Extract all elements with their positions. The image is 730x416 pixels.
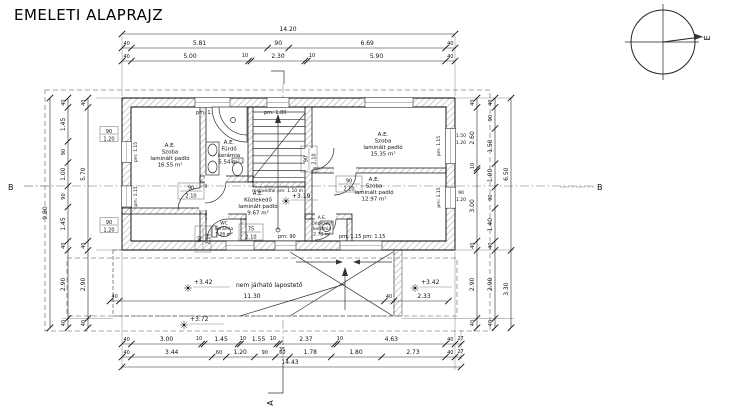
dim-label: 1.20 xyxy=(234,349,248,356)
level-corridor: +3.19 xyxy=(292,193,311,200)
room-label-furdo: A.E. Fürdő kerámia 5.54 m² xyxy=(218,140,240,166)
svg-text:A.E.: A.E. xyxy=(224,140,235,146)
stair-parapet-wall xyxy=(253,182,305,187)
svg-text:90: 90 xyxy=(346,179,352,185)
dim-label: 9.80 xyxy=(42,206,49,220)
dim-label: 40 xyxy=(470,100,476,106)
sink-icon xyxy=(208,161,217,173)
window xyxy=(446,187,456,208)
dim-label: 2.73 xyxy=(406,349,420,356)
dim-chain-top: 14.20 40 5.81 90 6.69 40 40 5.00 10 2.30… xyxy=(119,26,458,64)
svg-text:2.73 m²: 2.73 m² xyxy=(313,232,331,238)
dim-label: 40 xyxy=(124,54,130,60)
dim-label: 1.45 xyxy=(60,217,67,231)
room-label-szoba1: A.E. Szoba laminált padló 16.55 m² xyxy=(150,143,190,169)
dim-label: 40 xyxy=(61,100,67,106)
svg-text:laminált padló: laminált padló xyxy=(354,189,394,196)
dim-label: 10 xyxy=(196,336,202,342)
dim-label: 40 xyxy=(124,350,130,356)
window-pm-label: pm: 1.15 xyxy=(133,142,139,162)
dim-label: 3.00 xyxy=(160,336,174,343)
dim-label: 90 xyxy=(61,149,67,155)
dim-label: 27 xyxy=(457,336,463,342)
dim-label: 10 xyxy=(309,53,315,59)
dim-label: 90 xyxy=(488,194,494,200)
exterior-walls xyxy=(122,98,455,250)
svg-text:A.E.: A.E. xyxy=(369,177,380,183)
dim-label: 40 xyxy=(124,41,130,47)
window-flag: 90 1.20 xyxy=(100,127,118,143)
north-label: É xyxy=(701,35,712,40)
dim-label: 60 xyxy=(216,350,222,356)
dim-label: 10 xyxy=(240,336,246,342)
dim-label: 5.90 xyxy=(370,53,384,60)
compass: É xyxy=(625,4,712,80)
svg-text:Gépészet: Gépészet xyxy=(311,220,332,227)
window xyxy=(275,241,296,250)
svg-text:1.20: 1.20 xyxy=(456,140,466,146)
dim-label: 40 xyxy=(470,243,476,249)
svg-text:1.50: 1.50 xyxy=(456,133,466,139)
dim-label: 6.50 xyxy=(503,167,510,181)
section-a-top-mark xyxy=(271,71,284,84)
svg-text:16.55 m²: 16.55 m² xyxy=(157,162,182,169)
room-label-szoba3: A.E. Szoba laminált padló 12.97 m² xyxy=(354,177,394,203)
dim-label: 1.50 xyxy=(487,139,494,153)
dim-label: 14.20 xyxy=(279,26,296,33)
window xyxy=(122,186,132,207)
svg-text:2.10: 2.10 xyxy=(185,194,196,200)
svg-text:1.20: 1.20 xyxy=(456,197,466,203)
dim-label: 90 xyxy=(488,115,494,121)
window-flag: 90 1.20 xyxy=(456,190,466,203)
dim-label: 10 xyxy=(242,53,248,59)
svg-text:A.E.: A.E. xyxy=(378,132,389,138)
dim-label: 40 xyxy=(61,320,67,326)
dim-label: 11.30 xyxy=(243,293,260,300)
window xyxy=(446,129,456,164)
svg-text:2.10: 2.10 xyxy=(312,153,318,164)
windows xyxy=(122,98,456,251)
dim-label: 3.30 xyxy=(503,282,510,296)
level-marker-icon xyxy=(184,284,192,292)
svg-text:2.10: 2.10 xyxy=(206,233,212,244)
dim-label: 40 xyxy=(488,320,494,326)
dim-label: 2.37 xyxy=(299,336,313,343)
window-labels: pm: 1.80 pm: 1.80 90 1.20 90 1.20 pm: 1.… xyxy=(100,110,466,240)
dim-label: 40 xyxy=(447,41,453,47)
room-label-szoba2: A.E. Szoba laminált padló 15.35 m² xyxy=(363,132,403,158)
floor-plan-svg: EMELETI ALAPRAJZ É nem járható lapostető xyxy=(0,0,730,416)
svg-text:WC: WC xyxy=(220,221,228,227)
level-marker-icon xyxy=(180,321,188,329)
svg-text:12.97 m²: 12.97 m² xyxy=(361,196,386,203)
dim-label: 1.80 xyxy=(349,349,363,356)
svg-text:Szoba: Szoba xyxy=(375,139,392,145)
dim-label: 90 xyxy=(61,193,67,199)
svg-text:9.67 m²: 9.67 m² xyxy=(247,210,269,217)
dim-label: 5.81 xyxy=(193,40,207,47)
level-roof-left: +3.42 xyxy=(194,279,213,286)
roof-terrace: nem járható lapostető +3.42 +3.72 +3.42 … xyxy=(107,250,452,329)
level-roof-right: +3.42 xyxy=(421,279,440,286)
section-b-left: B xyxy=(8,183,14,192)
window-pm-label: pm: 1.15 pm: 1.15 xyxy=(339,234,386,240)
dim-label: 40 xyxy=(470,320,476,326)
dim-chain-bottom: 40 3.00 10 1.45 10 1.55 10 35 2.37 10 4.… xyxy=(119,336,465,370)
dim-label: 2.90 xyxy=(487,278,494,292)
svg-text:90: 90 xyxy=(458,190,464,196)
roof-label: nem járható lapostető xyxy=(236,282,303,289)
svg-text:Szoba: Szoba xyxy=(366,184,383,190)
svg-text:A.E.: A.E. xyxy=(318,215,327,221)
dim-label: 6.69 xyxy=(361,40,375,47)
dim-label: 14.43 xyxy=(281,359,298,366)
dim-label: 90 xyxy=(274,40,282,47)
svg-text:laminált padló: laminált padló xyxy=(363,144,403,151)
section-a-bottom-mark xyxy=(268,364,283,393)
dim-label: 40 xyxy=(81,320,87,326)
dim-label: 40 xyxy=(112,294,118,300)
window xyxy=(226,241,254,250)
window-pm-label: pm: 1.80 xyxy=(264,110,286,116)
dim-label: 2.90 xyxy=(60,278,67,292)
svg-text:kerámia: kerámia xyxy=(215,225,233,232)
dim-label: 1.40 xyxy=(487,218,494,232)
room-label-wc: WC kerámia 1.26 m² xyxy=(215,221,233,238)
dim-label: 2.30 xyxy=(271,53,285,60)
dim-label: 10 xyxy=(470,163,476,169)
page-title: EMELETI ALAPRAJZ xyxy=(14,6,163,24)
svg-text:kerámia: kerámia xyxy=(218,152,240,159)
dim-label: 40 xyxy=(124,337,130,343)
room-label-kozlekedo: A.E. Közlekedő laminált padló 9.67 m² xyxy=(238,191,278,217)
svg-text:75: 75 xyxy=(248,227,254,233)
window xyxy=(340,241,382,250)
dim-label: 1.00 xyxy=(487,169,494,183)
svg-text:A.E.: A.E. xyxy=(165,143,176,149)
dim-label: 3.44 xyxy=(165,349,179,356)
svg-text:90: 90 xyxy=(198,236,204,242)
svg-text:90: 90 xyxy=(304,156,310,162)
dim-label: 4.63 xyxy=(385,336,399,343)
dim-label: 1.55 xyxy=(252,336,266,343)
svg-text:Közlekedő: Közlekedő xyxy=(244,198,272,204)
window-pm-label: pm: 1.15 xyxy=(436,136,442,156)
svg-text:1.20: 1.20 xyxy=(103,228,114,234)
svg-text:laminált padló: laminált padló xyxy=(238,203,278,210)
bathtub-icon xyxy=(212,107,247,142)
dim-label: 60 xyxy=(279,350,285,356)
svg-text:Fürdő: Fürdő xyxy=(221,147,237,153)
dim-label: 1.45 xyxy=(60,118,67,132)
dim-label: 40 xyxy=(447,337,453,343)
interior-walls xyxy=(122,107,446,241)
door-arc xyxy=(205,182,226,203)
dim-label: 2.90 xyxy=(469,278,476,292)
dim-label: 10 xyxy=(337,336,343,342)
window-flag: 1.50 1.20 xyxy=(456,133,466,146)
dim-label: 40 xyxy=(447,350,453,356)
svg-text:1.26 m²: 1.26 m² xyxy=(215,232,233,238)
dim-label: 27 xyxy=(457,349,463,355)
dim-label: 40 xyxy=(81,243,87,249)
dim-label: 40 xyxy=(447,54,453,60)
dim-label: 1.45 xyxy=(214,336,228,343)
dim-label: 40 xyxy=(488,100,494,106)
level-roof-front: +3.72 xyxy=(190,316,209,323)
dim-label: 90 xyxy=(262,350,268,356)
svg-text:5.54 m²: 5.54 m² xyxy=(218,159,240,166)
level-marker-icon xyxy=(411,284,419,292)
svg-text:2.10: 2.10 xyxy=(245,235,256,241)
window-pm-label: pm: 1.15 xyxy=(436,187,442,207)
window xyxy=(267,98,289,108)
dim-label: 40 xyxy=(81,100,87,106)
window-pm-label: pm: 1.15 xyxy=(133,186,139,206)
dim-label: 40 xyxy=(61,243,67,249)
window xyxy=(195,98,230,108)
window-pm-label: pm: 90 xyxy=(278,234,296,240)
dim-label: 2.33 xyxy=(417,293,431,300)
dim-label: 2.60 xyxy=(469,131,476,145)
section-a-label: A xyxy=(266,400,275,406)
svg-text:Szoba: Szoba xyxy=(162,150,179,156)
svg-text:90: 90 xyxy=(106,129,112,135)
dim-label: 40 xyxy=(488,243,494,249)
dim-chain-right: 40 2.60 10 3.00 40 2.90 40 40 90 1.50 1.… xyxy=(469,95,514,331)
dim-label: 3.00 xyxy=(469,199,476,213)
sink-icon xyxy=(208,144,217,156)
svg-text:laminált padló: laminált padló xyxy=(150,155,190,162)
dim-label: 2.90 xyxy=(80,278,87,292)
dim-label: 1.00 xyxy=(60,167,67,181)
floor-plan-drawing: EMELETI ALAPRAJZ É nem járható lapostető xyxy=(0,0,730,416)
section-b-right: B xyxy=(597,183,603,192)
svg-text:A.E.: A.E. xyxy=(253,191,264,197)
dim-label: 40 xyxy=(386,294,392,300)
window-flag: 90 1.20 xyxy=(100,218,118,234)
svg-text:90: 90 xyxy=(106,220,112,226)
dim-label: 5.70 xyxy=(80,167,87,181)
dim-label: 1.78 xyxy=(304,349,318,356)
dim-label: 5.00 xyxy=(183,53,197,60)
svg-text:90: 90 xyxy=(188,186,194,192)
level-marker-icon xyxy=(282,197,290,205)
svg-text:15.35 m²: 15.35 m² xyxy=(370,151,395,158)
svg-text:2.10: 2.10 xyxy=(343,187,354,193)
svg-text:kerámia: kerámia xyxy=(313,225,331,232)
dim-label: 10 xyxy=(270,336,276,342)
svg-text:1.20: 1.20 xyxy=(103,137,114,143)
window xyxy=(365,98,413,108)
window xyxy=(122,141,132,162)
